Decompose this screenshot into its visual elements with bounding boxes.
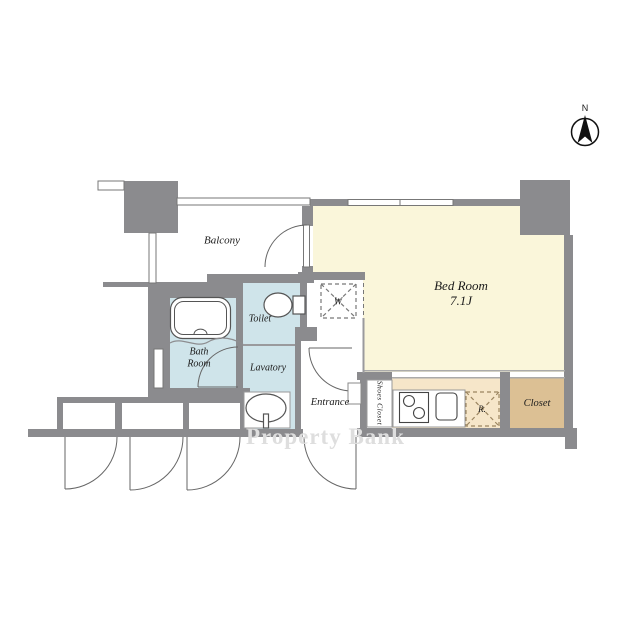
wall-closet-left	[500, 372, 510, 429]
wall-bays-top	[57, 397, 250, 403]
line-toilet-lavatory	[243, 344, 295, 346]
balcony-door	[265, 225, 310, 267]
line-closet-top	[510, 377, 565, 379]
bathroom-label-line1: Bath	[187, 347, 210, 359]
line-kitchen-top	[392, 377, 500, 379]
wall-above-toilet	[207, 274, 314, 283]
line-bedroom-bottom	[363, 370, 565, 372]
washer-label: W	[334, 296, 342, 308]
watermark: Property Bank	[246, 424, 405, 450]
wall-bedroom-notch	[298, 272, 365, 280]
wall-balcony-left-rail	[103, 282, 150, 287]
balcony-ledge	[98, 181, 124, 190]
compass-icon	[572, 115, 599, 146]
line-bedroom-edge-lower	[363, 318, 365, 373]
bedroom-size: 7.1J	[434, 294, 488, 309]
bedroom-label: Bed Room 7.1J	[434, 279, 488, 309]
fridge-label: R.	[478, 404, 486, 414]
wall-right-exterior	[564, 235, 573, 429]
bath-window	[154, 349, 163, 388]
balcony-rail-top	[177, 198, 310, 205]
kitchen-sink-icon	[436, 393, 457, 420]
bedroom-name: Bed Room	[434, 279, 488, 294]
compass-north-label: N	[582, 103, 589, 113]
wall-bay-divider-1	[115, 403, 122, 430]
wall-bays-left	[57, 397, 63, 431]
pillar-top-left	[124, 181, 178, 233]
lavatory-label: Lavatory	[250, 362, 286, 374]
wall-bay-divider-2	[183, 403, 189, 430]
wall-bath-bottom	[148, 388, 250, 397]
shoes-closet-label: Shoes Closet	[375, 381, 384, 426]
floorplan-graphic	[0, 0, 640, 640]
wall-bottom-right-stub	[565, 437, 577, 449]
entrance-door-leaf-parked	[348, 383, 361, 404]
bay-door-3	[187, 437, 240, 490]
wall-shoes-top	[357, 372, 392, 380]
bay-door-2	[130, 437, 183, 490]
bathroom-label: Bath Room	[187, 347, 210, 370]
floorplan-page: N Balcony Bed Room 7.1J Toilet Bath Room…	[0, 0, 640, 640]
bathtub-icon	[171, 298, 231, 339]
balcony-rail-left	[149, 233, 156, 283]
entrance-label: Entrance	[311, 397, 350, 409]
pillar-top-right	[520, 180, 570, 235]
toilet-label: Toilet	[249, 313, 271, 325]
bay-door-1	[65, 437, 117, 489]
balcony-label: Balcony	[204, 235, 240, 248]
hallway-floor	[307, 280, 363, 372]
wall-bath-lavatory	[236, 283, 243, 392]
wall-lavatory-entrance	[295, 341, 301, 429]
wall-balcony-bedroom-upper	[302, 206, 313, 226]
bathroom-label-line2: Room	[187, 358, 210, 370]
wall-block-toilet-corner	[295, 327, 317, 341]
closet-label: Closet	[524, 398, 551, 410]
